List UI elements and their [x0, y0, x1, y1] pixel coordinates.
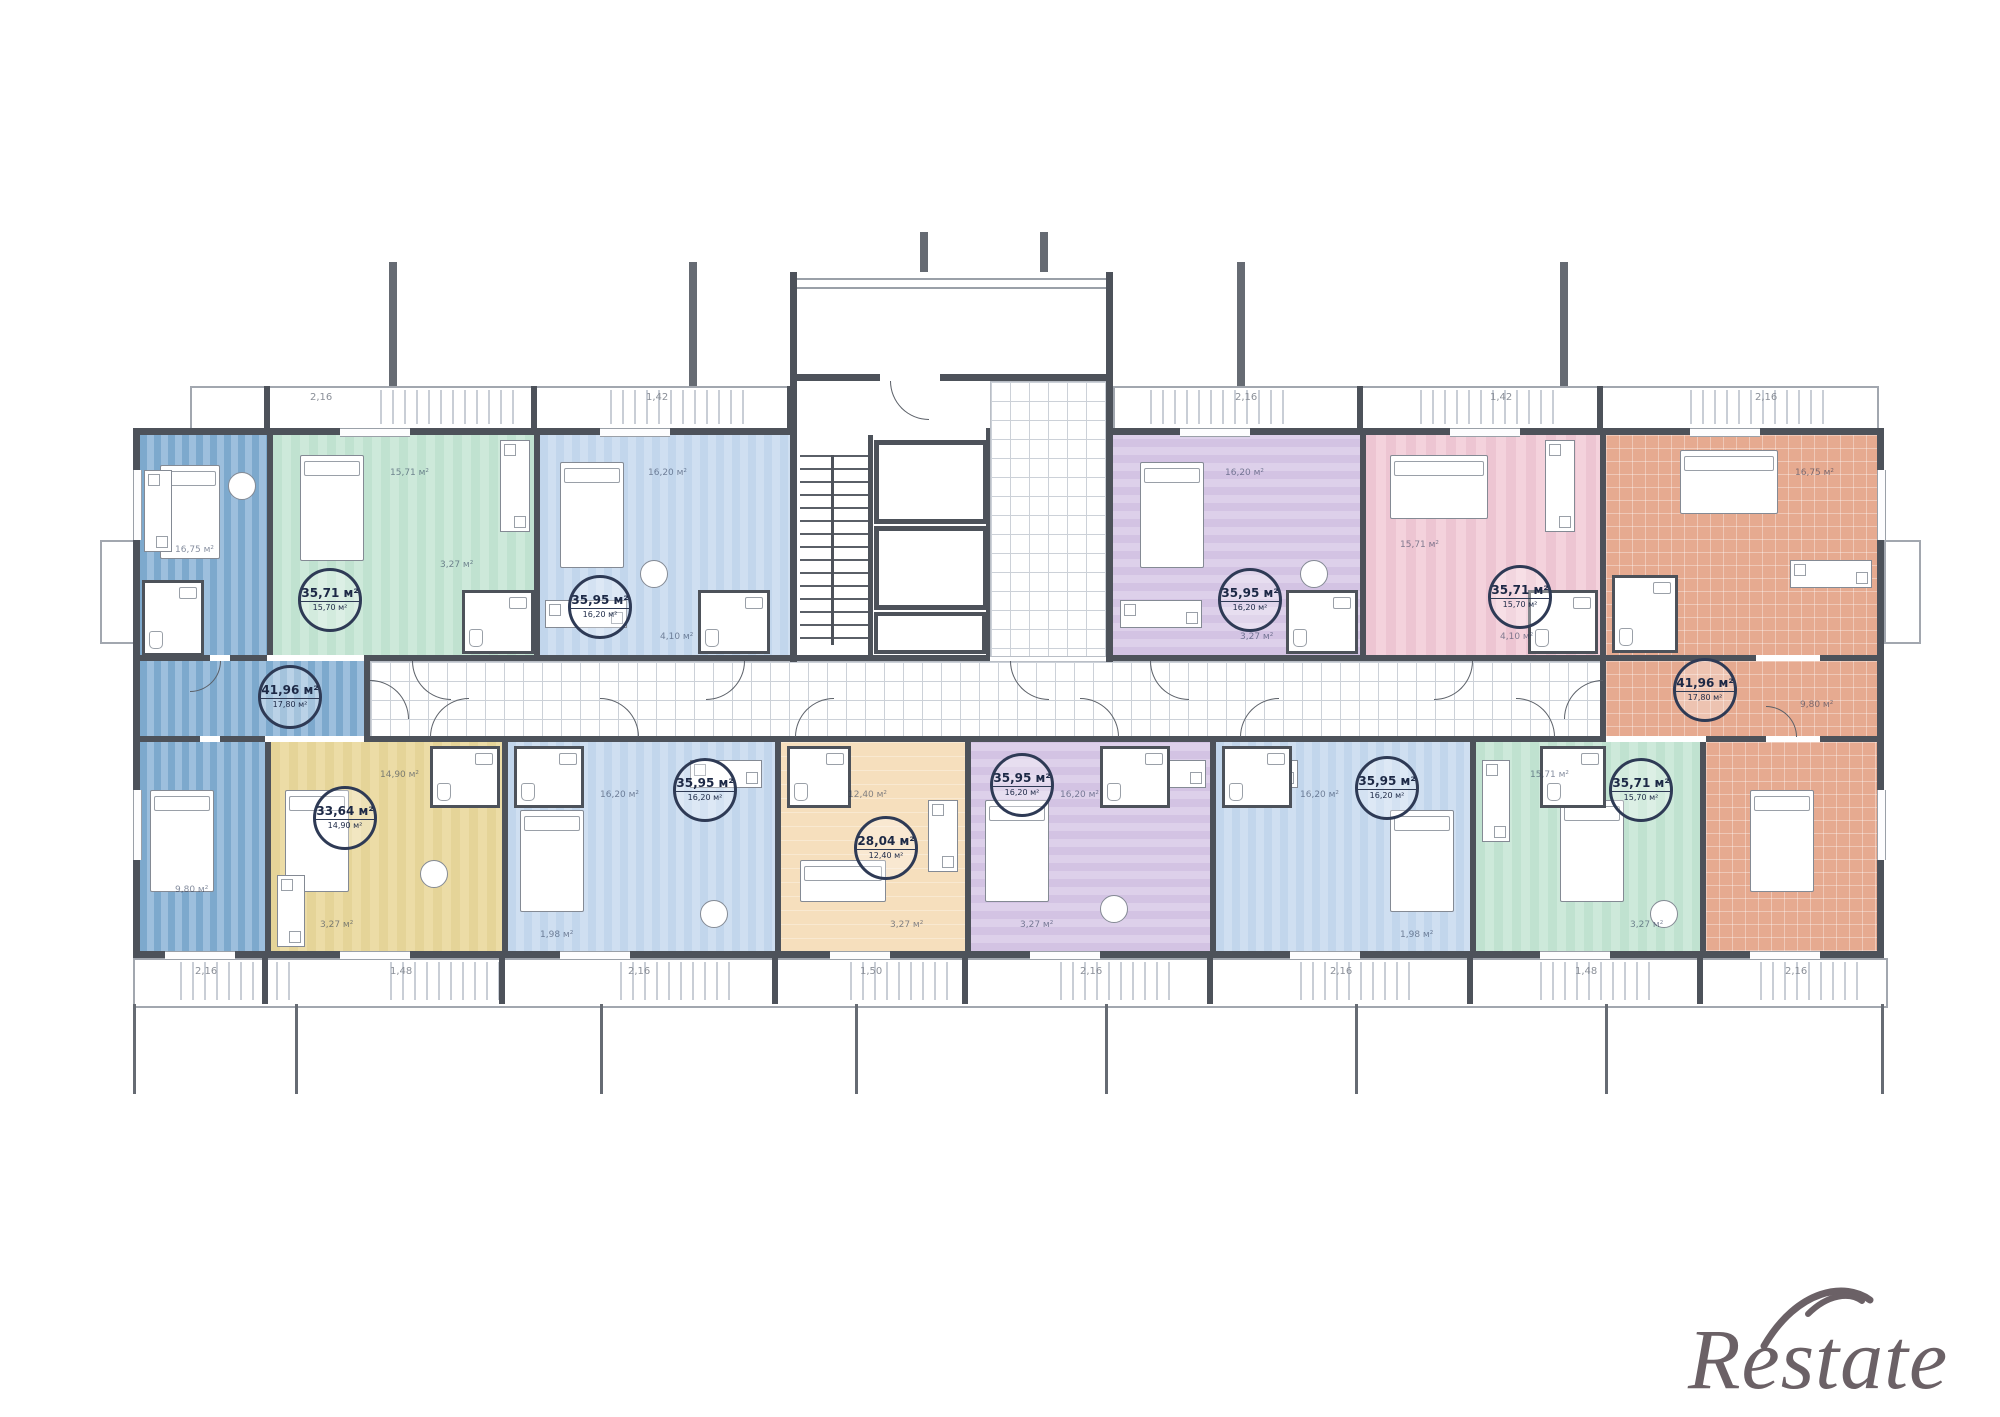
kitchen-counter: [500, 440, 530, 532]
bathroom: [1612, 575, 1678, 653]
balcony-divider: [264, 386, 270, 428]
window: [340, 951, 410, 960]
table: [1100, 895, 1128, 923]
window: [1180, 428, 1250, 437]
porch-line: [855, 1004, 858, 1094]
apartment-blue-hallway: [140, 661, 364, 736]
room-label: 16,75 м²: [1795, 468, 1834, 478]
porch-line: [295, 1004, 298, 1094]
room-label: 16,20 м²: [600, 790, 639, 800]
balcony-divider: [1467, 958, 1473, 1004]
kitchen-counter: [928, 800, 958, 872]
area-value: 41,96 м²: [259, 684, 320, 699]
vestibule-wall: [940, 374, 1106, 381]
living-area-value: 16,20 м²: [1005, 787, 1040, 798]
entrance-canopy-line: [797, 287, 1106, 289]
partition-wall: [775, 742, 781, 951]
room-label: 9,80 м²: [1800, 700, 1833, 710]
room-label: 3,27 м²: [890, 920, 923, 930]
partition-wall: [140, 736, 200, 742]
partition-wall: [267, 435, 273, 655]
vestibule-wall: [797, 374, 880, 381]
area-badge-lilac-top: 35,95 м²16,20 м²: [1218, 568, 1282, 632]
floor-plan: 41,96 м²17,80 м² 35,71 м²15,70 м² 35,95 …: [0, 0, 2000, 1417]
area-value: 35,95 м²: [1356, 775, 1417, 790]
bed: [150, 790, 214, 892]
wall-stub: [1237, 262, 1245, 386]
wall-stub: [920, 232, 928, 272]
table: [1300, 560, 1328, 588]
balcony-divider: [262, 958, 268, 1004]
area-badge-teal-bottom: 35,71 м²15,70 м²: [1609, 758, 1673, 822]
table: [700, 900, 728, 928]
room-label: 1,98 м²: [540, 930, 573, 940]
area-value: 35,95 м²: [674, 777, 735, 792]
window: [830, 951, 890, 960]
wall-stub: [689, 262, 697, 386]
area-badge-pink-top: 35,71 м²15,70 м²: [1488, 565, 1552, 629]
entrance-canopy-line: [797, 278, 1106, 280]
core-wall: [790, 272, 797, 662]
area-value: 41,96 м²: [1674, 677, 1735, 692]
balcony-side-left: [100, 540, 137, 644]
core-wall: [1106, 272, 1113, 662]
area-value: 33,64 м²: [314, 805, 375, 820]
area-badge-teal-top: 35,71 м²15,70 м²: [298, 568, 362, 632]
window: [1450, 428, 1520, 437]
room-label: 4,10 м²: [1500, 632, 1533, 642]
room-label: 16,75 м²: [175, 545, 214, 555]
balcony-divider: [1207, 958, 1213, 1004]
wall-stub: [1040, 232, 1048, 272]
bathroom: [462, 590, 534, 654]
living-area-value: 17,80 м²: [1688, 692, 1723, 703]
bathroom: [142, 580, 204, 656]
partition-wall: [220, 736, 265, 742]
balcony-dim-label: 1,42: [646, 392, 668, 403]
window: [1290, 951, 1360, 960]
window: [1877, 470, 1886, 540]
room-label: 15,71 м²: [1530, 770, 1569, 780]
living-area-value: 15,70 м²: [313, 602, 348, 613]
living-area-value: 17,80 м²: [273, 699, 308, 710]
partition-wall: [534, 435, 540, 655]
balcony-dim-label: 1,50: [860, 966, 882, 977]
window: [1540, 951, 1610, 960]
balcony-dim-label: 2,16: [195, 966, 217, 977]
porch-line: [1355, 1004, 1358, 1094]
balcony-dim-label: 2,16: [1755, 392, 1777, 403]
balcony-dim-label: 2,16: [1235, 392, 1257, 403]
window: [165, 951, 235, 960]
restate-watermark: Restate: [1688, 1316, 1948, 1402]
balcony-dim-label: 2,16: [628, 966, 650, 977]
room-label: 16,20 м²: [1060, 790, 1099, 800]
room-label: 4,10 м²: [660, 632, 693, 642]
balcony-hatch: [380, 390, 520, 424]
area-value: 35,95 м²: [991, 772, 1052, 787]
window: [133, 470, 142, 540]
balcony-divider: [1597, 386, 1603, 428]
window: [560, 951, 630, 960]
partition-wall: [1706, 736, 1766, 742]
bathroom: [787, 746, 851, 808]
room-label: 9,80 м²: [175, 885, 208, 895]
balcony-dim-label: 2,16: [1785, 966, 1807, 977]
porch-line: [600, 1004, 603, 1094]
area-badge-blue: 41,96 м²17,80 м²: [258, 665, 322, 729]
balcony-hatch: [1060, 962, 1180, 1000]
balcony-divider: [962, 958, 968, 1004]
table: [228, 472, 256, 500]
area-badge-salmon: 41,96 м²17,80 м²: [1673, 658, 1737, 722]
area-value: 35,71 м²: [299, 587, 360, 602]
corridor-wall: [370, 736, 1600, 742]
area-badge-lightblue-bottom-1: 35,95 м²16,20 м²: [673, 758, 737, 822]
living-area-value: 12,40 м²: [869, 850, 904, 861]
room-label: 16,20 м²: [1225, 468, 1264, 478]
bathroom: [698, 590, 770, 654]
partition-wall: [1360, 435, 1366, 655]
balcony-dim-label: 2,16: [1330, 966, 1352, 977]
table: [640, 560, 668, 588]
area-badge-peach: 28,04 м²12,40 м²: [854, 816, 918, 880]
entrance-door-arc: [890, 381, 929, 420]
balcony-dim-label: 2,16: [310, 392, 332, 403]
area-badge-lightblue-bottom-2: 35,95 м²16,20 м²: [1355, 756, 1419, 820]
staircase: [800, 455, 868, 645]
window: [1877, 790, 1886, 860]
area-value: 35,95 м²: [1219, 587, 1280, 602]
window: [1690, 428, 1760, 437]
balcony-dim-label: 1,42: [1490, 392, 1512, 403]
partition-wall: [1210, 742, 1216, 951]
window: [1030, 951, 1100, 960]
area-badge-lilac-bottom: 35,95 м²16,20 м²: [990, 753, 1054, 817]
partition-wall: [1820, 655, 1877, 661]
corridor-wall: [797, 655, 990, 661]
porch-line: [133, 1004, 136, 1094]
partition-wall: [1600, 435, 1606, 655]
wall-stub: [389, 262, 397, 386]
kitchen-counter: [1120, 600, 1202, 628]
room-label: 3,27 м²: [320, 920, 353, 930]
bed: [1390, 455, 1488, 519]
wall-stub: [1560, 262, 1568, 386]
window: [340, 428, 410, 437]
room-label: 3,27 м²: [1630, 920, 1663, 930]
partition-wall: [1606, 655, 1756, 661]
elevator-shaft: [874, 526, 988, 610]
balcony-dim-label: 1,48: [1575, 966, 1597, 977]
utility-room: [874, 612, 986, 654]
living-area-value: 16,20 м²: [1370, 790, 1405, 801]
area-badge-yellow: 33,64 м²14,90 м²: [313, 786, 377, 850]
balcony-hatch: [1760, 962, 1860, 1000]
bathroom: [514, 746, 584, 808]
bed: [1390, 810, 1454, 912]
area-value: 35,71 м²: [1489, 584, 1550, 599]
balcony-divider: [531, 386, 537, 428]
area-value: 35,95 м²: [569, 594, 630, 609]
partition-wall: [1700, 742, 1706, 951]
partition-wall: [1470, 742, 1476, 951]
balcony-hatch: [1150, 390, 1290, 424]
living-area-value: 15,70 м²: [1503, 599, 1538, 610]
bed: [1140, 462, 1204, 568]
room-label: 3,27 м²: [1020, 920, 1053, 930]
area-badge-lightblue-top: 35,95 м²16,20 м²: [568, 575, 632, 639]
bathroom: [1222, 746, 1292, 808]
room-label: 14,90 м²: [380, 770, 419, 780]
room-label: 3,27 м²: [1240, 632, 1273, 642]
room-label: 15,71 м²: [1400, 540, 1439, 550]
stair-hall-wall: [868, 435, 873, 655]
bed: [1750, 790, 1814, 892]
porch-line: [1105, 1004, 1108, 1094]
wall: [133, 428, 797, 435]
table: [420, 860, 448, 888]
elevator-shaft: [874, 440, 988, 524]
partition-wall: [1820, 736, 1877, 742]
kitchen-counter: [277, 875, 305, 947]
bathroom: [1100, 746, 1170, 808]
kitchen-counter: [1482, 760, 1510, 842]
area-value: 35,71 м²: [1610, 777, 1671, 792]
balcony-dim-label: 1,48: [390, 966, 412, 977]
restate-logo-swoosh-icon: [1750, 1276, 1880, 1350]
balcony-divider: [772, 958, 778, 1004]
porch-line: [1881, 1004, 1884, 1094]
bed: [1680, 450, 1778, 514]
bathroom: [1286, 590, 1358, 654]
room-label: 3,27 м²: [440, 560, 473, 570]
window: [1750, 951, 1820, 960]
area-value: 28,04 м²: [855, 835, 916, 850]
living-area-value: 16,20 м²: [583, 609, 618, 620]
room-label: 1,98 м²: [1400, 930, 1433, 940]
balcony-hatch: [610, 390, 750, 424]
room-label: 12,40 м²: [848, 790, 887, 800]
balcony-hatch: [1540, 962, 1660, 1000]
bathroom: [430, 746, 500, 808]
balcony-dim-label: 2,16: [1080, 966, 1102, 977]
balcony-divider: [1697, 958, 1703, 1004]
balcony-divider: [499, 958, 505, 1004]
kitchen-counter: [1545, 440, 1575, 532]
balcony-hatch: [1300, 962, 1420, 1000]
partition-wall: [265, 742, 271, 951]
window: [600, 428, 670, 437]
room-label: 16,20 м²: [1300, 790, 1339, 800]
porch-line: [1605, 1004, 1608, 1094]
partition-wall: [965, 742, 971, 951]
kitchen-counter: [1790, 560, 1872, 588]
balcony-side-right: [1884, 540, 1921, 644]
balcony-divider: [1357, 386, 1363, 428]
living-area-value: 16,20 м²: [688, 792, 723, 803]
room-label: 15,71 м²: [390, 468, 429, 478]
bed: [300, 455, 364, 561]
window: [133, 790, 142, 860]
living-area-value: 15,70 м²: [1624, 792, 1659, 803]
bed: [1560, 800, 1624, 902]
room-label: 16,20 м²: [648, 468, 687, 478]
elevator-lobby-floor: [990, 381, 1108, 657]
corridor-floor: [370, 661, 1602, 738]
kitchen-counter: [144, 470, 172, 552]
partition-wall: [502, 742, 508, 951]
bed: [560, 462, 624, 568]
living-area-value: 14,90 м²: [328, 820, 363, 831]
apartment-salmon-hallway: [1606, 661, 1877, 736]
partition-wall: [230, 655, 267, 661]
staircase-stringer: [831, 455, 834, 645]
bed: [520, 810, 584, 912]
living-area-value: 16,20 м²: [1233, 602, 1268, 613]
